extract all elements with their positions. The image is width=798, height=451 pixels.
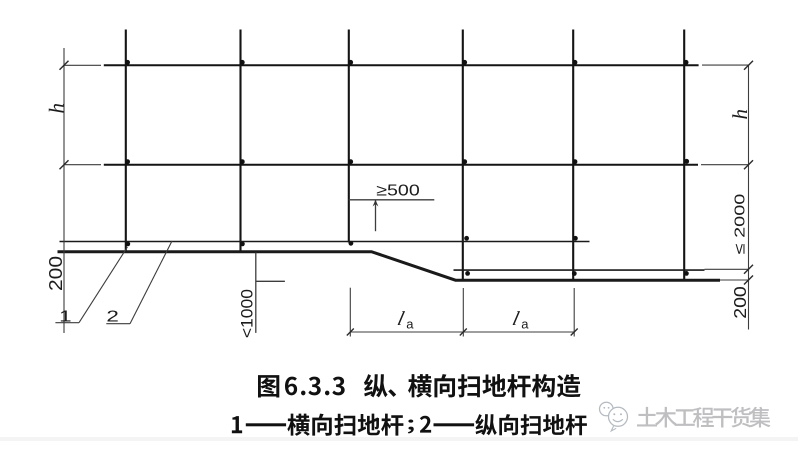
svg-text:a: a bbox=[521, 317, 529, 332]
svg-text:≤ 2000: ≤ 2000 bbox=[731, 193, 748, 254]
svg-text:h: h bbox=[45, 103, 69, 114]
svg-text:≥500: ≥500 bbox=[376, 181, 420, 199]
svg-text:h: h bbox=[728, 109, 752, 120]
svg-text:1: 1 bbox=[59, 309, 71, 326]
svg-text:<1000: <1000 bbox=[238, 289, 256, 338]
svg-text:a: a bbox=[406, 317, 414, 332]
svg-text:200: 200 bbox=[730, 286, 750, 319]
svg-text:2: 2 bbox=[106, 309, 118, 326]
svg-text:200: 200 bbox=[46, 256, 66, 291]
